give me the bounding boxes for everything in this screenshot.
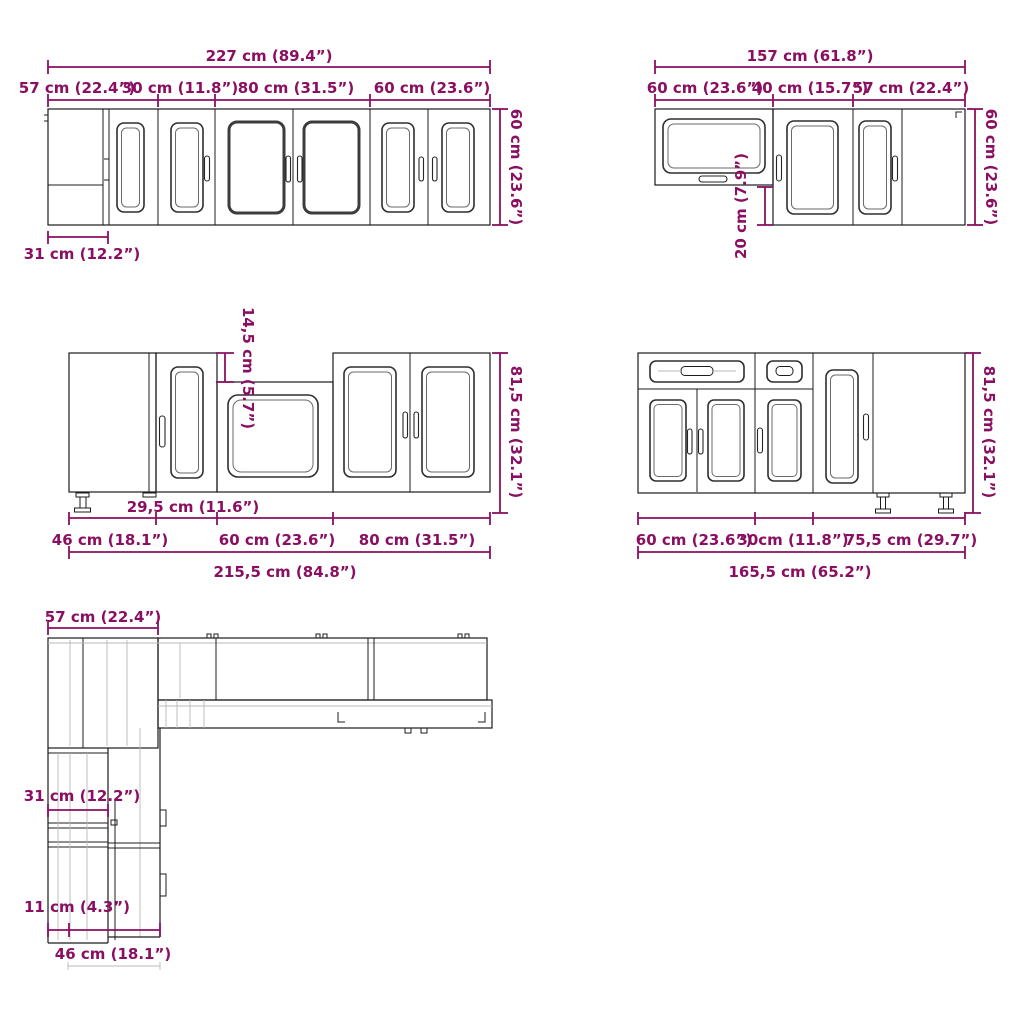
dimension-total-width: 215,5 cm (84.8”) bbox=[69, 546, 490, 581]
cabinet-handle bbox=[777, 155, 782, 181]
front-view-corner-wall-cabinets: 157 cm (61.8”) 60 cm (23.6”) 40 cm (15.7… bbox=[647, 47, 1000, 259]
dim-label-total: 157 cm (61.8”) bbox=[747, 47, 874, 65]
diagram-svg: 227 cm (89.4”) 57 cm (22.4”) 30 cm (11.8… bbox=[0, 0, 1024, 1024]
dimension-total-width: 157 cm (61.8”) bbox=[655, 47, 965, 74]
dim-label-segment: 30cm (11.8”) bbox=[737, 531, 848, 549]
dim-label-segment: 80 cm (31.5”) bbox=[359, 531, 475, 549]
dimension-total-width: 165,5 cm (65.2”) bbox=[638, 546, 965, 581]
cabinet-handle bbox=[160, 874, 166, 896]
dim-label-width: 57 cm (22.4”) bbox=[45, 608, 161, 626]
dimension-base-depth: 46 cm (18.1”) bbox=[55, 945, 171, 970]
dim-label-segment: 75,5 cm (29.7”) bbox=[845, 531, 978, 549]
drawers-and-doors bbox=[650, 361, 869, 483]
cabinet-handle bbox=[205, 156, 210, 181]
cabinet-handle bbox=[160, 416, 166, 447]
front-view-base-cabinets-drawers: 81,5 cm (32.1”) 60 cm (23.6”) 30cm (11.8… bbox=[636, 353, 998, 581]
dim-label-segment: 57 cm (22.4”) bbox=[853, 79, 969, 97]
cabinet-handle bbox=[160, 810, 166, 826]
dimension-height: 81,5 cm (32.1”) bbox=[492, 353, 525, 513]
dim-label-height: 60 cm (23.6”) bbox=[982, 109, 1000, 225]
front-view-base-cabinet-row: 14,5 cm (5.7”) 81,5 cm (32.1”) 29,5 cm (… bbox=[52, 307, 525, 581]
dimension-top-width: 57 cm (22.4”) bbox=[45, 608, 161, 635]
dimension-segments: 57 cm (22.4”) 30 cm (11.8”) 80 cm (31.5”… bbox=[19, 79, 490, 107]
dim-label-height: 81,5 cm (32.1”) bbox=[980, 366, 998, 499]
dim-label-height: 60 cm (23.6”) bbox=[507, 109, 525, 225]
cabinet-handle bbox=[403, 412, 408, 438]
adjustable-leg bbox=[877, 493, 889, 497]
adjustable-leg bbox=[940, 493, 952, 497]
adjustable-leg bbox=[876, 509, 891, 513]
dim-label-inset: 29,5 cm (11.6”) bbox=[127, 498, 260, 516]
dim-label-height: 81,5 cm (32.1”) bbox=[507, 366, 525, 499]
adjustable-leg bbox=[75, 508, 91, 512]
dimension-segments: 60 cm (23.6”) 30cm (11.8”) 75,5 cm (29.7… bbox=[636, 512, 977, 549]
cabinet-handle bbox=[699, 429, 704, 454]
cabinet-handle bbox=[433, 157, 438, 181]
dim-label-segment: 60 cm (23.6”) bbox=[647, 79, 763, 97]
dim-label-total: 165,5 cm (65.2”) bbox=[729, 563, 872, 581]
dimension-wall-depth: 31 cm (12.2”) bbox=[24, 787, 140, 817]
adjustable-leg bbox=[939, 509, 954, 513]
dim-label-total: 215,5 cm (84.8”) bbox=[214, 563, 357, 581]
dim-label-segment: 80 cm (31.5”) bbox=[238, 79, 354, 97]
cabinet-doors bbox=[160, 367, 475, 478]
cabinet-doors bbox=[104, 122, 474, 213]
drawer-handle-slot bbox=[776, 367, 793, 376]
dim-label-total: 227 cm (89.4”) bbox=[206, 47, 333, 65]
drawer-handle-slot bbox=[681, 367, 713, 376]
product-dimension-diagram: 227 cm (89.4”) 57 cm (22.4”) 30 cm (11.8… bbox=[0, 0, 1024, 1024]
adjustable-leg bbox=[80, 497, 86, 508]
dim-label-segment: 60 cm (23.6”) bbox=[374, 79, 490, 97]
dim-label-gap: 11 cm (4.3”) bbox=[24, 898, 130, 916]
dim-label-segment: 60 cm (23.6”) bbox=[636, 531, 752, 549]
cabinet-handle bbox=[419, 157, 424, 181]
cabinet-handle bbox=[298, 156, 303, 182]
dim-label-recess: 14,5 cm (5.7”) bbox=[239, 307, 257, 429]
dim-label-segment: 57 cm (22.4”) bbox=[19, 79, 135, 97]
dimension-total-width: 227 cm (89.4”) bbox=[48, 47, 490, 74]
dimension-segments: 29,5 cm (11.6”) 46 cm (18.1”) 60 cm (23.… bbox=[52, 498, 490, 549]
cabinet-doors bbox=[663, 119, 898, 214]
dimension-height: 60 cm (23.6”) bbox=[967, 109, 1000, 225]
dim-label-segment: 40 cm (15.7”) bbox=[752, 79, 868, 97]
dim-label-segment: 60 cm (23.6”) bbox=[219, 531, 335, 549]
plan-top-wall-run bbox=[48, 634, 487, 700]
dim-label-depth: 31 cm (12.2”) bbox=[24, 245, 140, 263]
dim-label-segment: 30 cm (11.8”) bbox=[122, 79, 238, 97]
cabinet-handle bbox=[758, 428, 763, 453]
cabinet-handle bbox=[699, 176, 727, 182]
plan-view-l-kitchen: 57 cm (22.4”) bbox=[24, 608, 492, 970]
adjustable-leg bbox=[944, 497, 949, 509]
dimension-depth: 31 cm (12.2”) bbox=[24, 231, 140, 263]
dimension-segments: 60 cm (23.6”) 40 cm (15.7”) 57 cm (22.4”… bbox=[647, 79, 969, 107]
dimension-recess: 14,5 cm (5.7”) bbox=[216, 307, 257, 429]
dim-label-base-depth: 46 cm (18.1”) bbox=[55, 945, 171, 963]
dimension-drop: 20 cm (7.9”) bbox=[732, 153, 773, 259]
cabinet-handle bbox=[286, 156, 291, 182]
adjustable-leg bbox=[881, 497, 886, 509]
adjustable-leg bbox=[76, 493, 89, 497]
cabinet-handle bbox=[688, 429, 693, 454]
front-view-wall-cabinet-row: 227 cm (89.4”) 57 cm (22.4”) 30 cm (11.8… bbox=[19, 47, 525, 263]
dimension-height: 60 cm (23.6”) bbox=[492, 109, 525, 225]
plan-corner-cabinet bbox=[48, 638, 158, 748]
dim-label-wall-depth: 31 cm (12.2”) bbox=[24, 787, 140, 805]
cabinet-handle bbox=[104, 159, 109, 180]
cabinet-handle bbox=[864, 414, 869, 440]
cabinet-handle bbox=[893, 156, 898, 181]
plan-top-base-run bbox=[158, 700, 492, 733]
dimension-height: 81,5 cm (32.1”) bbox=[965, 353, 998, 513]
dim-label-drop: 20 cm (7.9”) bbox=[732, 153, 750, 259]
cabinet-handle bbox=[414, 412, 419, 438]
